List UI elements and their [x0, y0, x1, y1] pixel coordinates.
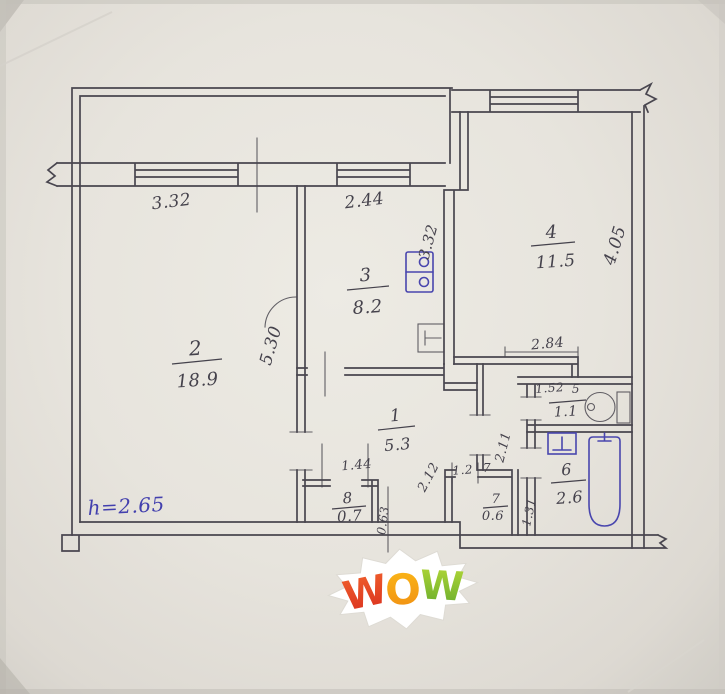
room3-area: 8.2: [352, 296, 384, 319]
room2-area: 18.9: [176, 369, 219, 393]
room5-underline: [549, 400, 586, 403]
dim-room4-width: 2.84: [529, 335, 564, 354]
photo-edge-bottom: [0, 689, 725, 694]
balcony-walls: [72, 88, 452, 535]
ceiling-height-note: h=2.65: [87, 492, 165, 520]
dimension-labels: 3.32 2.44 3.32 4.05 5.30 2.84 1.52 5 2.1…: [150, 189, 630, 536]
room2-number: 2: [187, 336, 203, 361]
room1-number: 1: [389, 406, 402, 427]
dim-window-left: 3.32: [150, 190, 192, 215]
wow-letter-o: O: [384, 564, 423, 615]
toilet-icon: [585, 392, 630, 423]
room6-underline: [551, 480, 586, 483]
dim-room4-side: 4.05: [600, 224, 631, 269]
room7-area: 0.6: [482, 509, 504, 524]
photo-edge-left: [0, 0, 6, 694]
dim-window-kitchen: 2.44: [342, 189, 385, 214]
room7-label: 7 0.6: [482, 492, 508, 524]
room3-label: 3 8.2: [347, 265, 389, 319]
wc-room-number: 5: [572, 382, 580, 396]
dim-closet-side: 0.63: [374, 505, 392, 535]
paper-crease: [0, 12, 112, 66]
dim-closet-width: 1.44: [341, 457, 373, 475]
room7-number-outside: 7: [483, 461, 491, 475]
photo-corner-bottom-left: [0, 658, 30, 694]
room8-number: 8: [342, 489, 353, 508]
door-swing-arc: [265, 297, 296, 327]
bottom-walls: [62, 522, 666, 551]
room6-area: 2.6: [555, 487, 584, 508]
right-wall: [632, 106, 644, 548]
room1-area: 5.3: [383, 434, 412, 455]
corridor-west-wall: [477, 364, 483, 470]
room4-number: 4: [544, 222, 558, 244]
room1-label: 1 5.3: [378, 406, 415, 456]
kitchen-sink-icon: [418, 324, 444, 352]
room5-label: 1.1: [549, 400, 586, 421]
room2-east-wall: [297, 186, 305, 522]
room-labels: 2 18.9 3 8.2 4 11.5 1 5.3 1.1 6 2.6: [172, 222, 586, 526]
wow-sticker: W O W: [325, 543, 481, 636]
floor-plan-drawing: 3.32 2.44 3.32 4.05 5.30 2.84 1.52 5 2.1…: [0, 0, 725, 694]
room1-underline: [378, 426, 415, 430]
top-right-wall: [452, 84, 656, 112]
floor-plan-photo: 3.32 2.44 3.32 4.05 5.30 2.84 1.52 5 2.1…: [0, 0, 725, 694]
dim-corridor-a: 2.11: [492, 430, 514, 465]
window-wall: [47, 163, 445, 186]
room7-walls: [445, 470, 518, 535]
dim-room7-width: 1.2: [452, 462, 474, 477]
dim-corridor-b: 2.12: [415, 460, 443, 495]
dim-wc-width: 1.52: [535, 380, 565, 396]
dim-kitchen-side: 3.32: [415, 222, 442, 261]
wow-letter-w2: W: [419, 562, 465, 610]
room3-underline: [347, 286, 389, 290]
room2-label: 2 18.9: [172, 336, 222, 393]
room8-area: 0.7: [336, 506, 363, 526]
room4-area: 11.5: [535, 251, 576, 274]
photo-edge-top: [0, 0, 725, 4]
kitchen-south-wall: [297, 364, 477, 390]
bathtub-icon: [589, 433, 620, 526]
dim-room2-side: 5.30: [256, 324, 286, 368]
room7-number: 7: [492, 492, 501, 507]
room3-number: 3: [359, 265, 372, 287]
room6-number: 6: [561, 460, 573, 480]
dim-corridor-c: 1.31: [519, 497, 539, 528]
room5-area: 1.1: [554, 403, 579, 420]
room4-label: 4 11.5: [531, 222, 576, 274]
room4-south-wall: [454, 357, 578, 377]
room6-label: 6 2.6: [551, 460, 586, 508]
paper-crease-2: [628, 640, 704, 692]
room8-label: 8 0.7: [332, 489, 366, 526]
kitchen-room4-wall: [444, 112, 468, 364]
washbasin-icon: [548, 433, 576, 454]
photo-edge-right: [719, 0, 725, 694]
